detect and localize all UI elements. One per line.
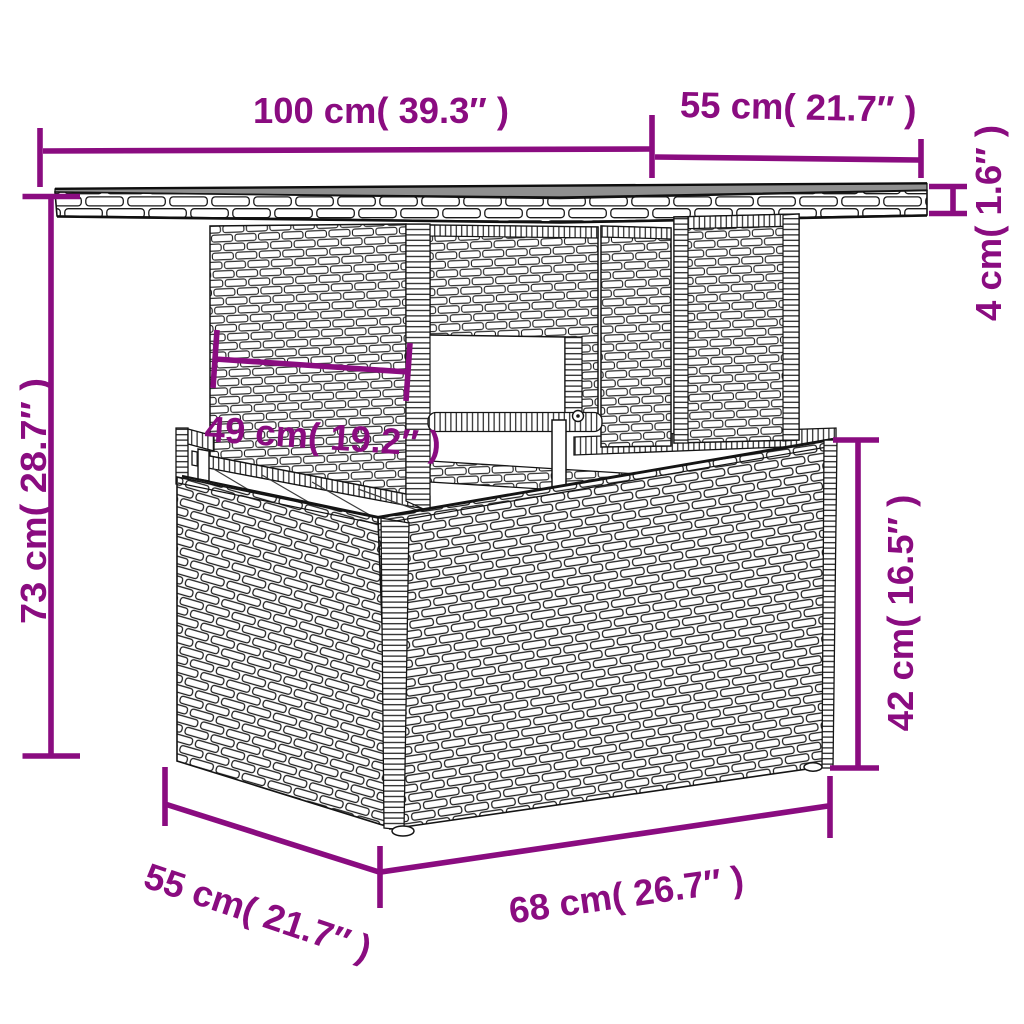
- svg-text:4 cm( 1.6″ ): 4 cm( 1.6″ ): [968, 125, 1009, 321]
- svg-text:55 cm( 21.7″ ): 55 cm( 21.7″ ): [680, 84, 917, 130]
- svg-text:100 cm( 39.3″ ): 100 cm( 39.3″ ): [253, 90, 509, 131]
- svg-text:73 cm( 28.7″ ): 73 cm( 28.7″ ): [13, 378, 54, 624]
- svg-text:42 cm( 16.5″ ): 42 cm( 16.5″ ): [880, 495, 921, 732]
